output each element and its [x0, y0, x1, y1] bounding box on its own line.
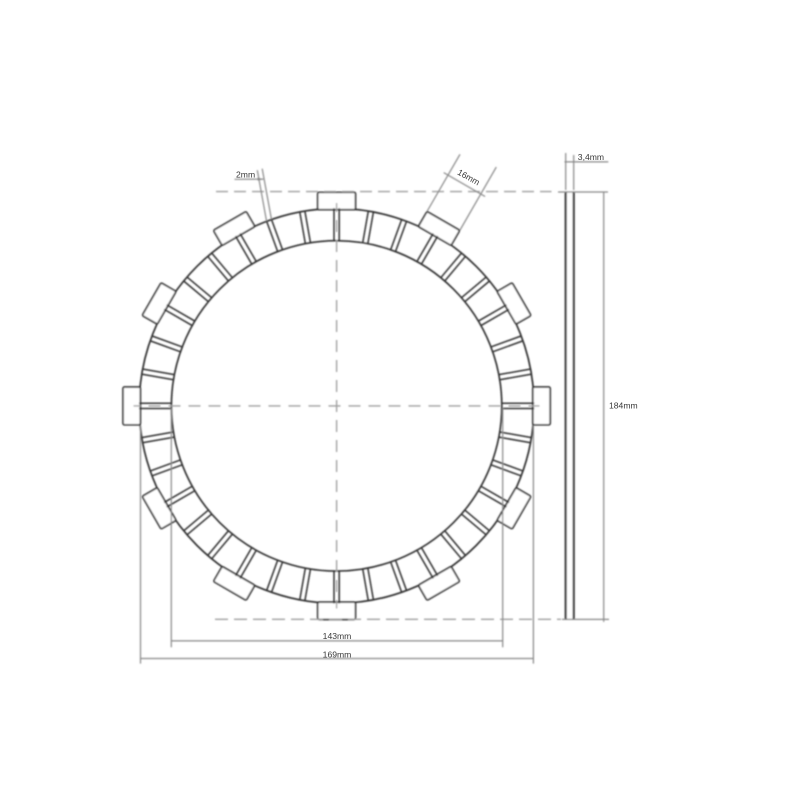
svg-text:16mm: 16mm: [456, 167, 482, 187]
svg-text:143mm: 143mm: [323, 631, 352, 641]
svg-text:2mm: 2mm: [236, 169, 255, 179]
svg-text:3,4mm: 3,4mm: [578, 152, 604, 162]
svg-text:169mm: 169mm: [323, 649, 352, 659]
svg-text:184mm: 184mm: [609, 400, 638, 410]
